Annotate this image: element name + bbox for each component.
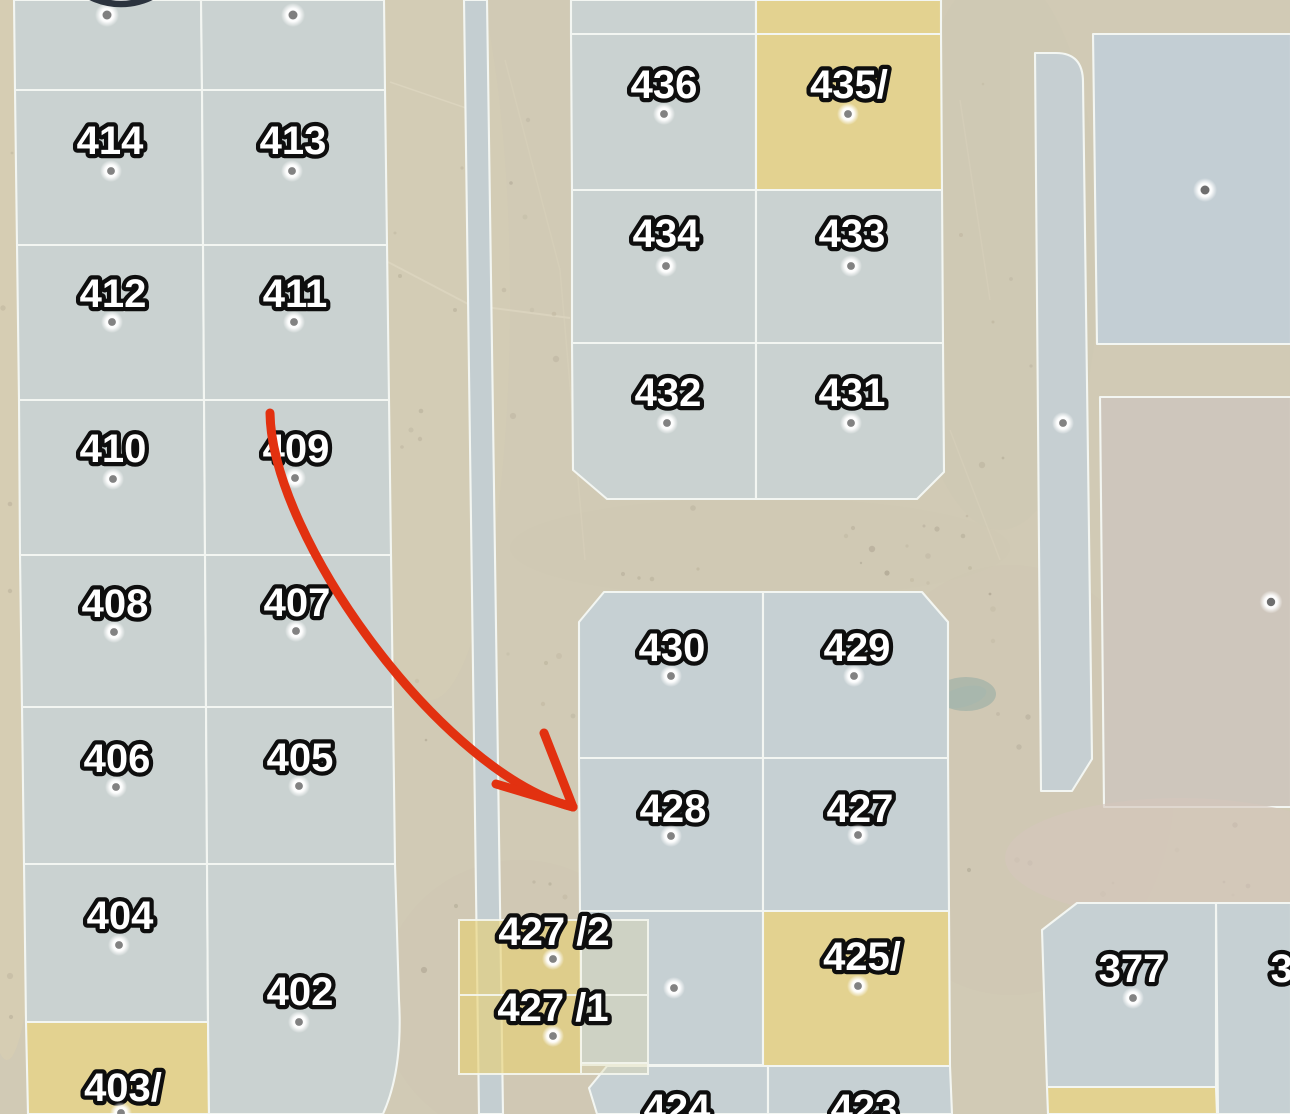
svg-text:435/: 435/ bbox=[810, 63, 888, 107]
svg-text:407: 407 bbox=[264, 581, 331, 625]
svg-text:431: 431 bbox=[819, 371, 886, 415]
svg-text:428: 428 bbox=[640, 787, 707, 831]
svg-text:423: 423 bbox=[831, 1087, 898, 1114]
svg-text:405: 405 bbox=[267, 736, 334, 780]
svg-text:424: 424 bbox=[644, 1087, 711, 1114]
svg-text:376: 376 bbox=[1271, 947, 1290, 991]
svg-text:434: 434 bbox=[633, 212, 700, 256]
svg-text:377: 377 bbox=[1099, 947, 1166, 991]
svg-text:408: 408 bbox=[82, 582, 149, 626]
svg-text:425/: 425/ bbox=[823, 935, 901, 979]
svg-text:413: 413 bbox=[260, 119, 327, 163]
svg-text:429: 429 bbox=[824, 626, 891, 670]
svg-text:430: 430 bbox=[639, 626, 706, 670]
svg-text:410: 410 bbox=[80, 427, 147, 471]
svg-text:414: 414 bbox=[77, 119, 144, 163]
svg-text:427 /1: 427 /1 bbox=[497, 986, 608, 1030]
svg-text:433: 433 bbox=[819, 212, 886, 256]
svg-text:436: 436 bbox=[631, 63, 698, 107]
svg-text:404: 404 bbox=[87, 894, 154, 938]
svg-text:406: 406 bbox=[84, 737, 151, 781]
svg-text:427 /2: 427 /2 bbox=[498, 910, 609, 954]
svg-text:412: 412 bbox=[80, 272, 147, 316]
svg-text:432: 432 bbox=[635, 371, 702, 415]
svg-text:411: 411 bbox=[263, 272, 328, 316]
svg-text:402: 402 bbox=[267, 970, 334, 1014]
